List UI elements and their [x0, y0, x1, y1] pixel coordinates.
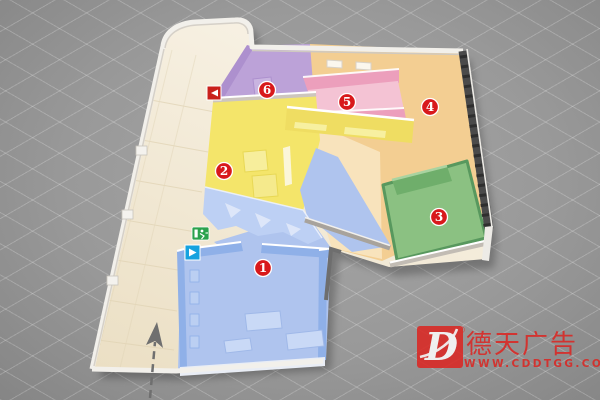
badge-room-3: 3 — [431, 209, 448, 226]
svg-text:3: 3 — [435, 210, 443, 224]
badge-room-5: 5 — [339, 94, 356, 111]
svg-text:1: 1 — [259, 261, 267, 275]
red-left-arrow-icon — [207, 86, 221, 100]
blue-right-arrow-icon — [185, 245, 200, 260]
svg-text:4: 4 — [426, 100, 434, 114]
floor-plan-illustration: 1 2 3 4 5 6 D ® 德天广告 WWW.CDDTGG.COM — [0, 0, 600, 400]
badge-room-1: 1 — [255, 260, 272, 277]
brand-website: WWW.CDDTGG.COM — [464, 358, 600, 370]
registered-mark: ® — [457, 326, 466, 336]
grid-background: 1 2 3 4 5 6 D ® 德天广告 WWW.CDDTGG.COM — [0, 0, 600, 400]
badge-room-6: 6 — [259, 82, 276, 99]
brand-name: 德天广告 — [466, 330, 578, 360]
badge-room-2: 2 — [216, 163, 233, 180]
svg-text:5: 5 — [343, 95, 351, 109]
watermark: D ® 德天广告 WWW.CDDTGG.COM — [417, 324, 600, 370]
exit-sign-icon — [192, 227, 209, 240]
badge-room-4: 4 — [422, 99, 439, 116]
svg-text:2: 2 — [220, 164, 228, 178]
svg-text:6: 6 — [263, 83, 271, 97]
